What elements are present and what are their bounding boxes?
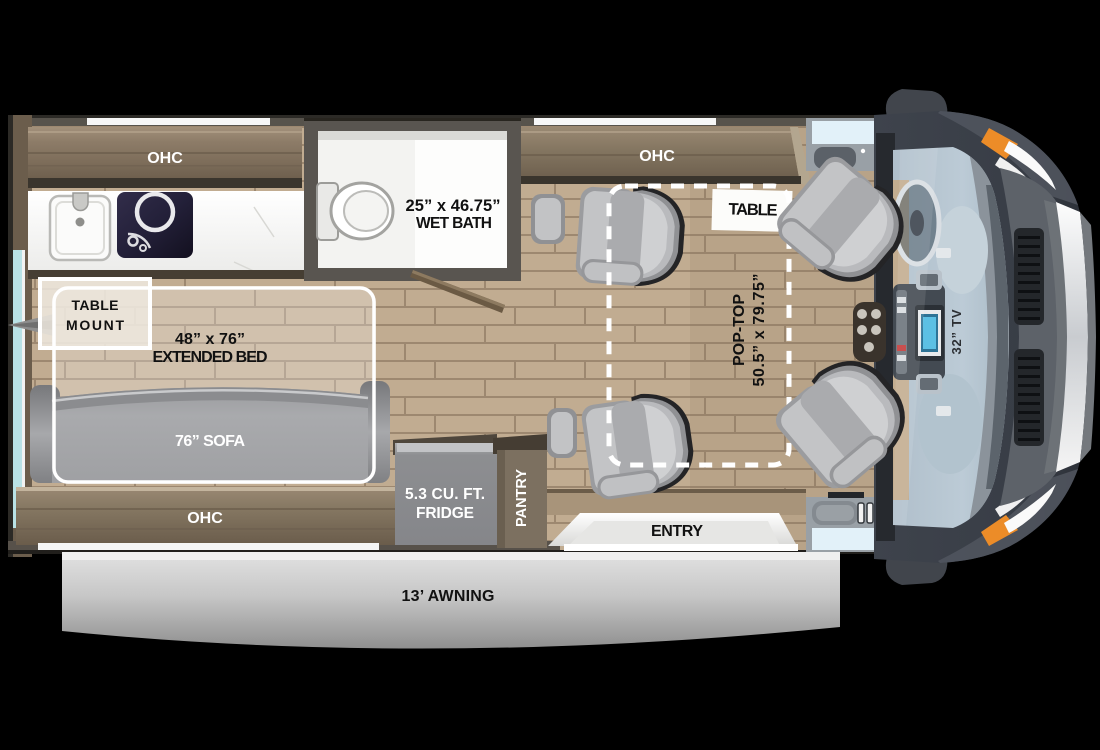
svg-text:OHC: OHC xyxy=(187,510,223,527)
svg-text:EXTENDED BED: EXTENDED BED xyxy=(153,349,268,366)
svg-text:PANTRY: PANTRY xyxy=(514,469,530,527)
svg-text:OHC: OHC xyxy=(147,150,183,167)
svg-text:50.5” x 79.75”: 50.5” x 79.75” xyxy=(751,274,768,387)
svg-text:POP-TOP: POP-TOP xyxy=(731,294,748,366)
svg-text:ENTRY: ENTRY xyxy=(651,523,703,540)
svg-text:32” TV: 32” TV xyxy=(949,309,964,354)
svg-text:TABLE: TABLE xyxy=(728,200,777,219)
svg-text:TABLE: TABLE xyxy=(72,297,119,313)
svg-text:25” x 46.75”: 25” x 46.75” xyxy=(406,197,501,215)
svg-text:76” SOFA: 76” SOFA xyxy=(175,433,245,450)
svg-text:OHC: OHC xyxy=(639,148,675,165)
svg-text:FRIDGE: FRIDGE xyxy=(416,505,474,522)
svg-text:13’ AWNING: 13’ AWNING xyxy=(402,588,495,605)
svg-text:WET BATH: WET BATH xyxy=(416,215,492,232)
svg-text:5.3 CU. FT.: 5.3 CU. FT. xyxy=(405,486,485,503)
svg-text:MOUNT: MOUNT xyxy=(66,317,124,333)
svg-text:48” x 76”: 48” x 76” xyxy=(175,331,245,348)
